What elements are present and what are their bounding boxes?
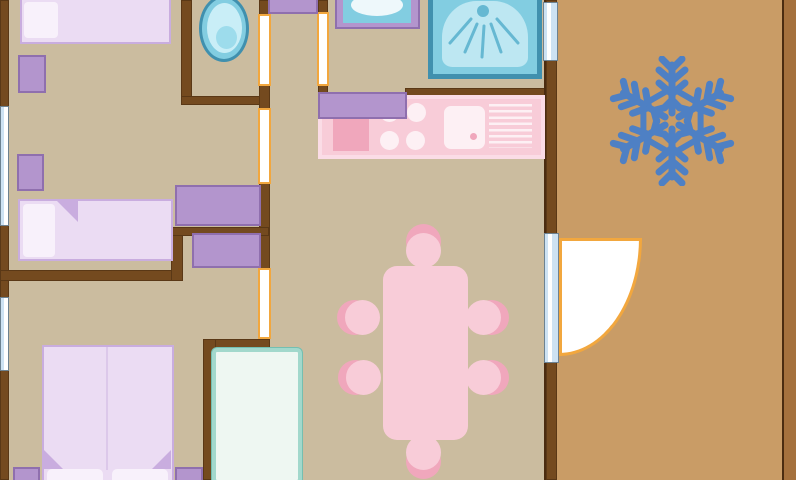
door-opening-master (258, 268, 271, 339)
tall-cabinet (212, 348, 302, 480)
chair-bottom (406, 435, 441, 470)
kitchen-cabinet (318, 92, 407, 119)
nightstand-2 (17, 154, 44, 191)
nightstand-1 (18, 55, 46, 93)
chair-right-1 (466, 300, 501, 335)
wall-hallway-mid (259, 84, 270, 110)
door-opening-bedroom2 (258, 108, 271, 184)
shower-spray-icon (442, 1, 528, 67)
wardrobe-1 (175, 185, 261, 226)
single-bed-2-pillow (23, 204, 55, 257)
burner-top-right (407, 103, 426, 122)
wall-left-outer (0, 0, 9, 480)
double-bed-pillow-left (47, 469, 103, 480)
double-bed (42, 345, 174, 480)
wall-toilet-bottom (181, 96, 270, 105)
chair-left-1 (345, 300, 380, 335)
wall-toilet-side (181, 0, 192, 104)
nightstand-3 (13, 467, 40, 480)
chair-top (406, 233, 441, 268)
door-opening-bathroom (317, 12, 329, 86)
wall-bedroom2-bottom (0, 270, 183, 281)
toilet-bowl (216, 26, 237, 49)
burner-bottom-left (380, 131, 399, 150)
hallway-shelf (268, 0, 318, 14)
nightstand-4 (175, 467, 203, 480)
chair-right-2 (466, 360, 501, 395)
wardrobe-2 (192, 233, 261, 268)
door-opening-toilet (258, 14, 271, 86)
snowflake-icon (607, 56, 737, 186)
chair-left-2 (346, 360, 381, 395)
floor-plan-canvas (0, 0, 796, 480)
double-bed-divider (106, 347, 108, 470)
terrace-rail (782, 0, 796, 480)
window-left-bottom (0, 297, 9, 371)
single-bed-1-pillow (24, 2, 58, 38)
window-left-top (0, 106, 9, 226)
entrance-door-leaf (544, 233, 559, 363)
kitchen-sink (444, 106, 485, 149)
cooktop-zone (333, 117, 369, 151)
window-terrace-wall (543, 2, 558, 61)
sink-drain (470, 133, 477, 140)
draining-board (489, 104, 532, 148)
dining-table (383, 266, 468, 440)
burner-bottom-right (406, 131, 425, 150)
shower (428, 0, 542, 79)
double-bed-pillow-right (112, 469, 168, 480)
